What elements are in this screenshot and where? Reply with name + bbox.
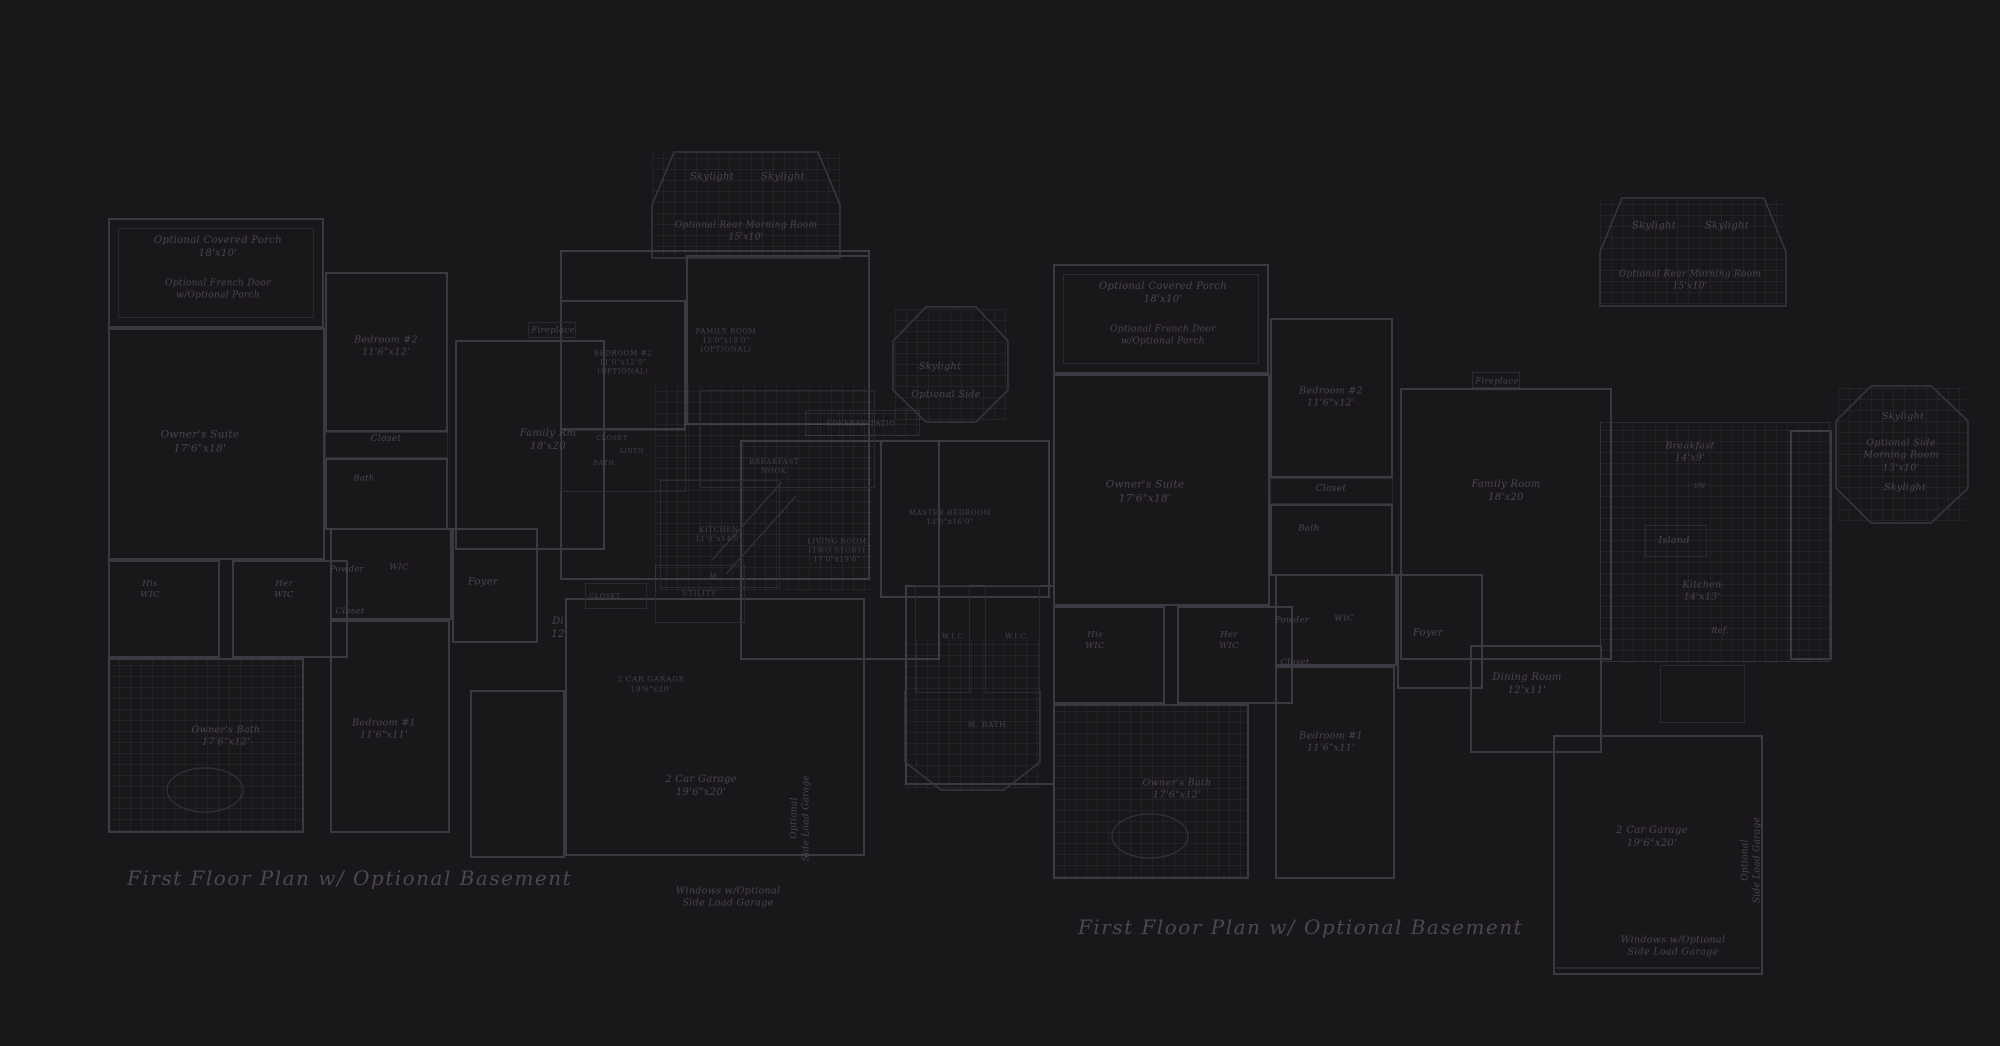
label-bath-left: Bath	[353, 473, 374, 484]
label-her-wic-left: Her WIC	[274, 579, 294, 601]
label-optional-side-morning-room-right: Optional Side Morning Room 13'x10'	[1863, 437, 1939, 474]
label-optional-french-door-right: Optional French Door w/Optional Porch	[1110, 324, 1216, 347]
label-caps-2-car-garage-center: 2 CAR GARAGE 19'6"x20'	[617, 674, 684, 694]
label-closet-bedroom2-right: Closet	[1316, 484, 1347, 496]
label-optional-rear-morning-room-left: Optional Rear Morning Room 15'x10'	[675, 220, 818, 243]
label-caps-breakfast-nook-center: BREAKFAST NOOK	[749, 458, 799, 476]
label-washer-left: W	[710, 572, 718, 581]
label-optional-covered-porch-right: Optional Covered Porch 18'x10'	[1099, 280, 1227, 306]
label-her-wic-right: Her WIC	[1219, 630, 1239, 652]
label-wic-left: WIC	[389, 562, 409, 573]
label-skylight-1-left: Skylight	[690, 171, 734, 184]
label-owners-bath-right: Owner's Bath 17'6"x12'	[1143, 778, 1212, 803]
label-family-room-right: Family Room 18'x20	[1471, 478, 1540, 504]
plan-linework	[0, 0, 2000, 1046]
label-caps-family-room-center: FAMILY ROOM 15'0"x18'0" (OPTIONAL)	[696, 327, 757, 354]
tub-outline	[1112, 814, 1188, 858]
label-foyer-right: Foyer	[1413, 627, 1443, 640]
label-optional-covered-porch-left: Optional Covered Porch 18'x10'	[154, 234, 282, 260]
label-owners-suite-right: Owner's Suite 17'6"x18'	[1106, 478, 1185, 505]
label-closet-hall-left: Closet	[336, 606, 365, 617]
label-wic-right: WIC	[1334, 613, 1354, 624]
label-optional-side-load-garage-left: Optional Side Load Garage	[789, 775, 812, 862]
label-bedroom1-left: Bedroom #1 11'6"x11'	[352, 718, 416, 743]
label-caps-linen-center: LINEN	[620, 448, 644, 456]
label-skylight-2-left: Skylight	[761, 171, 805, 184]
label-caps-covered-patio-center: COVERED PATIO	[826, 419, 895, 428]
label-2-car-garage-right: 2 Car Garage 19'6"x20'	[1616, 824, 1688, 850]
label-caps-m-bath-center: M. BATH	[968, 720, 1007, 730]
label-skylight-side-left: Skylight	[919, 361, 961, 373]
tub-outline	[167, 768, 243, 812]
stair-line	[712, 482, 782, 560]
blueprint-canvas: First Floor Plan w/ Optional Basement Fi…	[0, 0, 2000, 1046]
label-caps-living-room-center: LIVING ROOM (TWO STORY) 17'0"x19'0"	[807, 537, 867, 564]
label-caps-kitchen-center: KITCHEN 11'0"x14'0"	[695, 526, 743, 544]
label-bedroom1-right: Bedroom #1 11'6"x11'	[1299, 731, 1363, 756]
label-windows-optional-side-load-left: Windows w/Optional Side Load Garage	[676, 886, 781, 911]
label-kitchen-right: Kitchen 14'x13'	[1682, 580, 1721, 605]
label-caps-master-bedroom-center: MASTER BEDROOM 13'0"x16'0"	[909, 509, 991, 527]
label-fireplace-left: Fireplace	[531, 325, 574, 336]
label-his-wic-right: His WIC	[1085, 630, 1105, 652]
label-fireplace-right: Fireplace	[1475, 376, 1518, 387]
label-2-car-garage-left: 2 Car Garage 19'6"x20'	[665, 773, 737, 799]
label-caps-bedroom-center: BEDROOM #2 11'0"x12'0" (OPTIONAL)	[594, 349, 652, 376]
label-caps-closet-center: CLOSET	[596, 434, 628, 442]
label-optional-french-door-left: Optional French Door w/Optional Porch	[165, 278, 271, 301]
label-dining-left: Di 12	[551, 615, 564, 641]
label-optional-rear-morning-room-right: Optional Rear Morning Room 15'x10'	[1619, 269, 1762, 292]
label-closet-bedroom2-left: Closet	[371, 434, 402, 446]
label-closet-hall-right: Closet	[1281, 657, 1310, 668]
label-powder-right: Powder	[1275, 615, 1309, 626]
label-windows-optional-side-load-right: Windows w/Optional Side Load Garage	[1621, 935, 1726, 960]
label-island-right: Island	[1658, 535, 1689, 547]
label-owners-bath-left: Owner's Bath 17'6"x12'	[192, 725, 261, 750]
label-dining-room-right: Dining Room 12'x11'	[1492, 671, 1561, 697]
label-optional-side-left: Optional Side	[911, 389, 980, 401]
label-wic-a-center: W.I.C.	[942, 632, 966, 641]
label-family-rm-left: Family Rm 18'x20	[520, 427, 577, 453]
label-wic-b-center: W.I.C.	[1005, 632, 1029, 641]
label-caps-utility-center: UTILITY	[682, 589, 716, 598]
label-breakfast-right: Breakfast 14'x9'	[1665, 441, 1714, 466]
label-caps-closet2-center: CLOSET	[589, 592, 621, 600]
bay-outline	[905, 690, 1040, 790]
label-skylight-side-top-right: Skylight	[1882, 411, 1924, 423]
label-skylight-1-right: Skylight	[1632, 220, 1676, 233]
label-ref-right: Ref.	[1711, 626, 1728, 636]
label-caps-bath-center: BATH	[593, 459, 615, 467]
label-dw-right: DW	[1694, 483, 1706, 491]
label-his-wic-left: His WIC	[140, 579, 160, 601]
label-powder-left: Powder	[330, 564, 364, 575]
label-bedroom2-left: Bedroom #2 11'6"x12'	[354, 335, 418, 360]
label-foyer-left: Foyer	[468, 576, 498, 589]
label-owners-suite-left: Owner's Suite 17'6"x18'	[161, 428, 240, 455]
label-skylight-2-right: Skylight	[1705, 220, 1749, 233]
label-bedroom2-right: Bedroom #2 11'6"x12'	[1299, 386, 1363, 411]
label-skylight-side-bottom-right: Skylight	[1884, 482, 1926, 494]
label-optional-side-load-garage-right: Optional Side Load Garage	[1740, 817, 1763, 904]
label-bath-right: Bath	[1298, 523, 1319, 534]
